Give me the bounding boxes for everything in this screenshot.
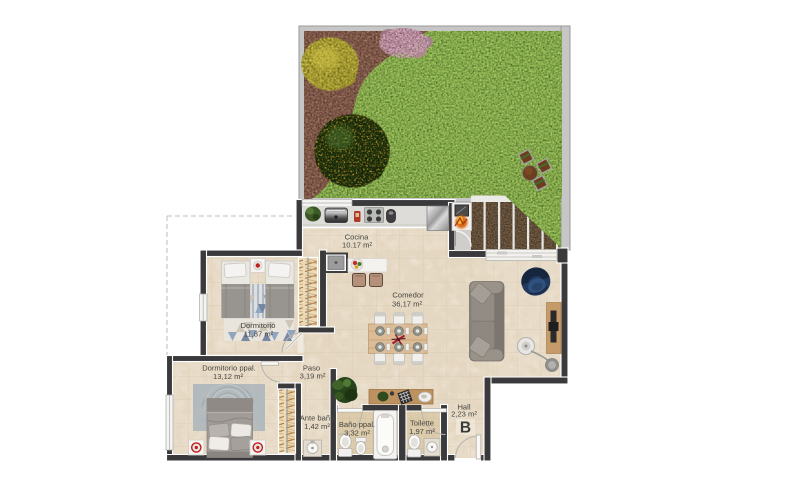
svg-text:13,12 m²: 13,12 m² bbox=[213, 372, 243, 381]
svg-text:Comedor: Comedor bbox=[392, 291, 424, 300]
svg-text:3,19 m²: 3,19 m² bbox=[300, 372, 326, 381]
svg-text:3,32 m²: 3,32 m² bbox=[344, 429, 370, 438]
svg-text:36,17 m²: 36,17 m² bbox=[392, 300, 422, 309]
svg-text:2,23 m²: 2,23 m² bbox=[451, 410, 477, 419]
svg-text:1,42 m²: 1,42 m² bbox=[304, 422, 330, 431]
svg-text:10.17 m²: 10.17 m² bbox=[342, 241, 372, 250]
svg-text:B: B bbox=[460, 420, 471, 437]
svg-text:1,97 m²: 1,97 m² bbox=[409, 427, 435, 436]
svg-text:11,87 m²: 11,87 m² bbox=[244, 330, 274, 339]
